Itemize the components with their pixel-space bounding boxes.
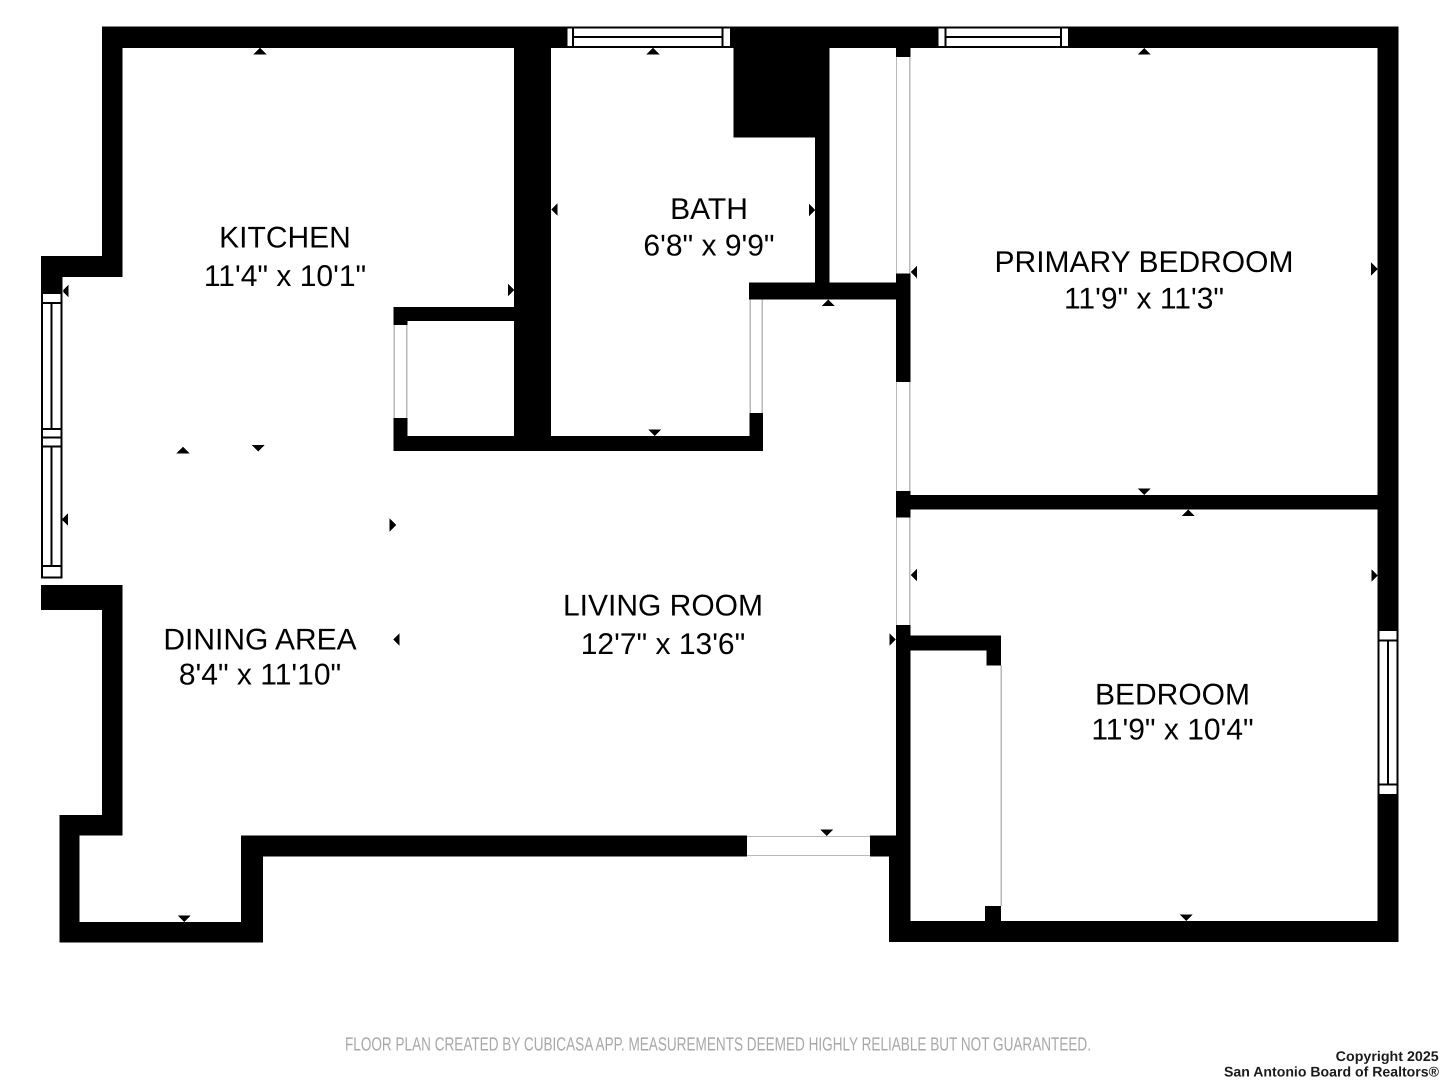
svg-text:11'9" x 11'3": 11'9" x 11'3"	[1064, 283, 1224, 316]
svg-text:Copyright 2025: Copyright 2025	[1336, 1048, 1439, 1064]
svg-text:BEDROOM: BEDROOM	[1095, 679, 1250, 712]
svg-text:6'8" x 9'9": 6'8" x 9'9"	[643, 230, 774, 263]
svg-text:12'7" x 13'6": 12'7" x 13'6"	[581, 628, 746, 661]
svg-text:San Antonio Board of Realtors®: San Antonio Board of Realtors®	[1224, 1064, 1440, 1080]
svg-text:BATH: BATH	[670, 193, 748, 226]
svg-text:8'4" x 11'10": 8'4" x 11'10"	[179, 659, 341, 692]
svg-text:11'9" x 10'4": 11'9" x 10'4"	[1091, 714, 1253, 747]
svg-text:DINING AREA: DINING AREA	[163, 624, 356, 657]
svg-text:KITCHEN: KITCHEN	[219, 222, 351, 255]
svg-text:PRIMARY BEDROOM: PRIMARY BEDROOM	[995, 246, 1294, 279]
svg-text:FLOOR PLAN CREATED BY CUBICASA: FLOOR PLAN CREATED BY CUBICASA APP. MEAS…	[345, 1035, 1091, 1056]
svg-text:11'4" x 10'1": 11'4" x 10'1"	[204, 260, 366, 293]
svg-text:LIVING ROOM: LIVING ROOM	[563, 590, 763, 623]
